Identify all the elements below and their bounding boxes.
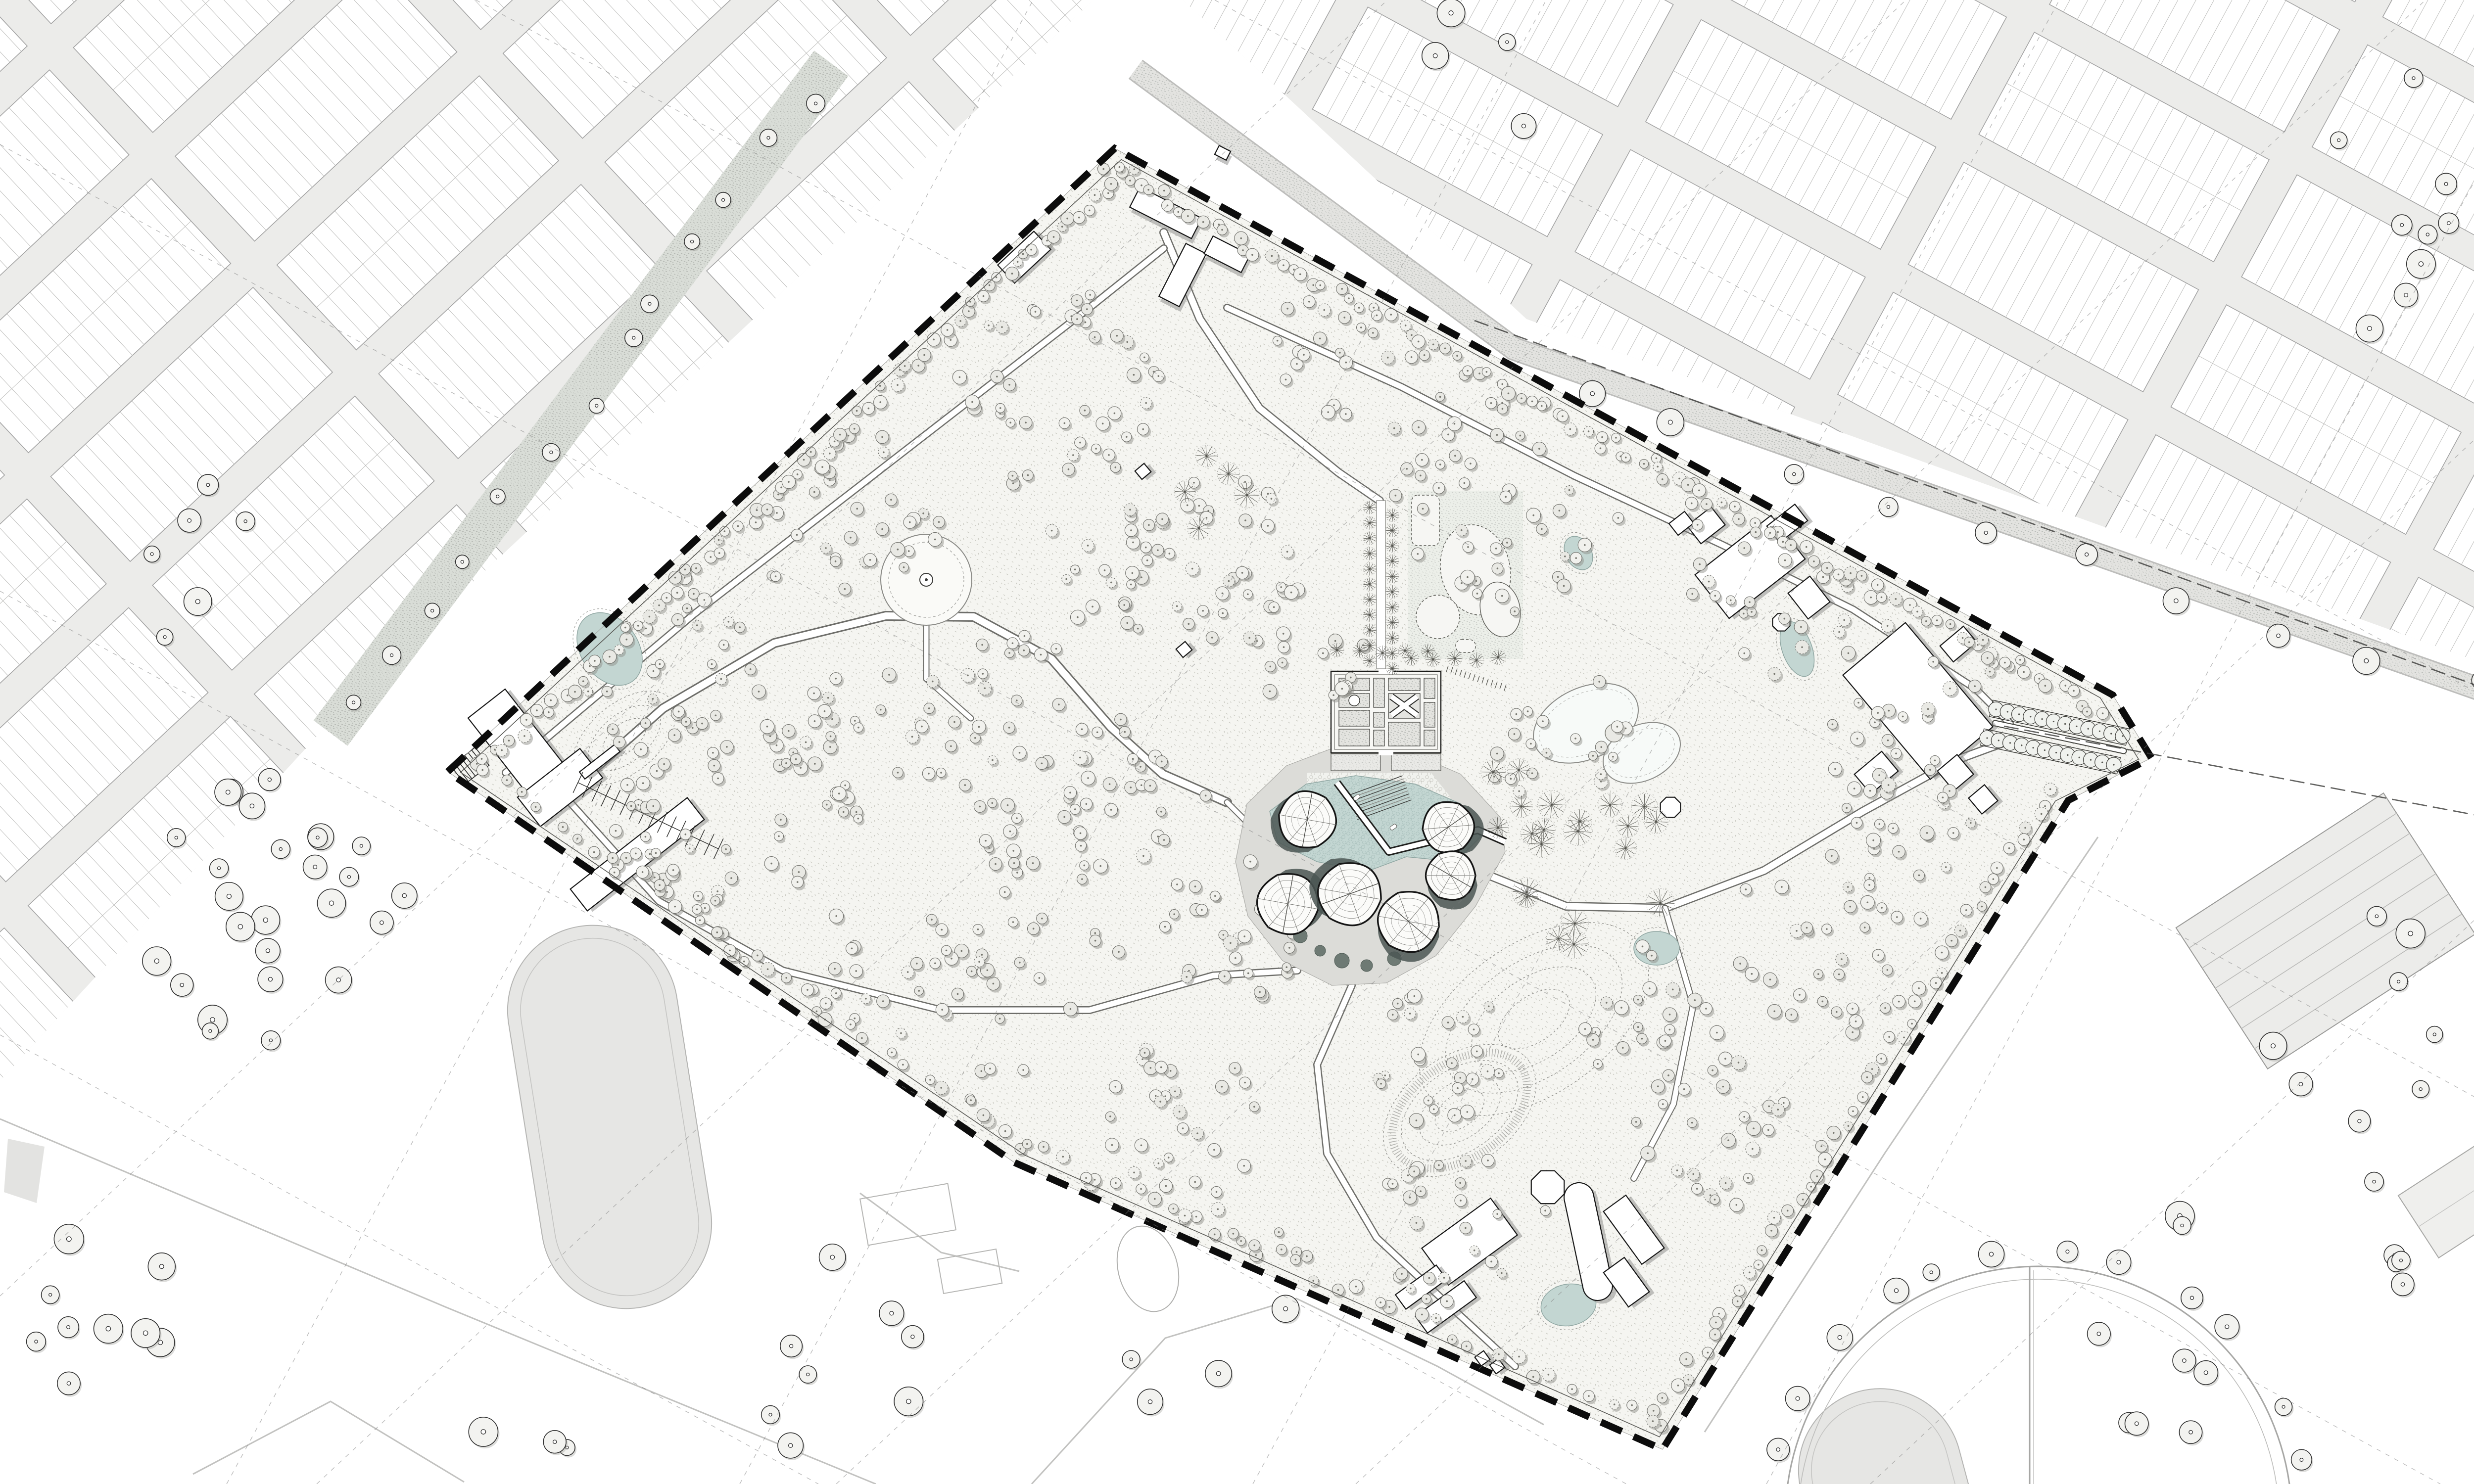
tree-center	[1542, 720, 1544, 722]
tree-center	[1076, 318, 1078, 320]
tree-center	[1846, 807, 1848, 809]
tree-center	[1080, 833, 1082, 835]
tree-center	[1751, 611, 1753, 613]
tree-center	[968, 310, 970, 312]
tree-center	[1657, 1085, 1659, 1087]
tree-center	[1283, 265, 1285, 267]
tree-center	[1981, 906, 1983, 908]
running-track	[1780, 1370, 2020, 1484]
tree-center	[1559, 510, 1561, 511]
tree-center	[1464, 482, 1466, 484]
tree-center	[1925, 620, 1927, 622]
tree-center	[971, 401, 973, 403]
tree-center	[1027, 474, 1029, 476]
tree-center	[1777, 531, 1779, 533]
tree-center	[1142, 855, 1144, 857]
tree-center	[1157, 835, 1159, 837]
tree-center	[983, 295, 985, 297]
context-road	[193, 1401, 464, 1482]
tree-center	[1130, 787, 1132, 788]
tree-center	[1159, 1101, 1161, 1103]
tree-center	[1087, 545, 1089, 547]
tree-center	[1178, 211, 1180, 213]
tree-center	[1790, 544, 1792, 546]
tree-center	[1074, 568, 1076, 570]
tree-center	[1826, 567, 1828, 569]
tree-center	[1243, 935, 1245, 937]
tree-center	[829, 453, 831, 455]
garden-bed-texture	[1388, 678, 1420, 691]
tree-center	[813, 693, 815, 695]
tree-center	[1011, 273, 1013, 275]
block-outline	[933, 0, 1214, 144]
parcel-line	[754, 1042, 833, 1127]
tree-center	[663, 763, 665, 765]
tree-center	[1761, 1250, 1763, 1252]
tree-center	[1606, 1002, 1608, 1004]
tree-center	[1716, 1032, 1718, 1034]
parcel-line	[414, 1156, 494, 1241]
parcel-line	[2126, 786, 2182, 888]
parcel-line	[2445, 790, 2474, 893]
tree-center	[1708, 581, 1710, 583]
tree-center	[1710, 1194, 1712, 1196]
tree-center	[1421, 459, 1423, 461]
tree-center	[494, 749, 496, 751]
tree-center	[1433, 1109, 1435, 1111]
tree-center	[1341, 288, 1343, 290]
tree-center	[1532, 514, 1534, 516]
tree-center	[1643, 463, 1645, 465]
tree-center	[637, 625, 639, 627]
tree-center	[879, 385, 881, 387]
garden-bed-texture	[1424, 678, 1435, 698]
tree-center	[1033, 928, 1035, 930]
tree-center	[2065, 685, 2067, 687]
parcel-line	[2252, 686, 2308, 788]
parcel-line	[742, 1053, 822, 1138]
tree-center	[1333, 404, 1335, 406]
tree-center	[1109, 783, 1111, 785]
tree-center	[1025, 421, 1027, 423]
tree-center	[981, 954, 983, 956]
tree-center	[855, 970, 857, 972]
tree-center	[1927, 708, 1929, 710]
tree-center	[1743, 547, 1745, 549]
tree-center	[1755, 531, 1757, 533]
tree-center	[1416, 1119, 1418, 1121]
parcel-line	[43, 1096, 122, 1181]
tree-center	[1161, 518, 1163, 520]
tree-center	[1651, 955, 1653, 957]
tree-center	[1727, 1139, 1729, 1141]
tree-center	[1932, 661, 1934, 663]
garden-bed-texture	[1388, 722, 1420, 746]
tree-center	[979, 806, 981, 808]
play-shape	[1412, 495, 1439, 546]
tree-center	[1035, 311, 1037, 313]
tree-center	[1132, 542, 1134, 544]
tree-center	[618, 649, 620, 651]
tree-center	[1409, 1013, 1411, 1015]
tree-center	[1968, 641, 1970, 643]
tree-center	[1086, 803, 1088, 805]
tree-center	[1718, 1313, 1720, 1315]
tree-center	[951, 958, 952, 960]
tree-center	[1656, 458, 1658, 460]
tree-center	[1892, 828, 1894, 830]
garden-terrace-texture	[1391, 754, 1441, 771]
tree-center	[1854, 788, 1855, 789]
tree-center	[718, 552, 720, 554]
tree-center	[1520, 435, 1522, 437]
tree-center	[720, 678, 722, 680]
tree-center	[645, 628, 647, 630]
tree-center	[723, 644, 725, 646]
tree-center	[2004, 662, 2006, 664]
tree-center	[695, 567, 697, 569]
tree-center	[1244, 1082, 1246, 1084]
tree-center	[1989, 671, 1991, 673]
tree-center	[851, 947, 853, 949]
parcel-line	[719, 1075, 799, 1160]
tree-center	[525, 719, 527, 721]
parcel-line	[188, 960, 267, 1045]
tree-center	[879, 401, 881, 403]
tree-center	[1133, 168, 1135, 170]
tree-center	[1186, 976, 1188, 978]
tree-center	[1952, 832, 1954, 834]
parcel-line	[0, 1194, 18, 1279]
tree-center	[1768, 1106, 1770, 1108]
tree-center	[1395, 495, 1397, 497]
tree-center	[1810, 1186, 1812, 1188]
tree-center	[1879, 823, 1881, 825]
tree-center	[856, 410, 858, 412]
tree-center	[1749, 1272, 1751, 1274]
tree-center	[1699, 563, 1701, 565]
parcel-line	[109, 1237, 189, 1322]
parcel-line	[1049, 32, 1104, 135]
parcel-line	[1133, 0, 1189, 12]
tree-center	[678, 711, 680, 713]
tree-center	[1467, 370, 1469, 372]
tree-center	[946, 950, 948, 952]
tree-center	[880, 709, 882, 711]
tree-center	[1350, 677, 1352, 679]
tree-center	[1030, 249, 1032, 251]
tree-center	[1092, 605, 1094, 607]
parcel-line	[1119, 0, 1175, 4]
parcel-line	[65, 1074, 145, 1159]
tree-center	[1600, 773, 1602, 775]
tree-center	[776, 744, 778, 746]
tree-center	[1584, 1028, 1586, 1030]
tree-center	[1697, 524, 1699, 526]
tree-center	[1249, 861, 1251, 863]
tree-center	[1133, 374, 1135, 376]
tree-center	[1895, 598, 1897, 600]
tree-center	[1557, 576, 1559, 578]
tree-center	[728, 621, 730, 623]
tree-center	[589, 665, 591, 667]
tree-center	[1221, 229, 1223, 231]
tree-center	[826, 804, 828, 806]
tree-center	[1730, 600, 1732, 602]
tree-center	[869, 559, 871, 561]
block-outline	[5, 1145, 287, 1419]
tree-center	[1438, 487, 1440, 489]
tree-center	[928, 773, 930, 775]
tree-center	[1126, 341, 1128, 343]
tree-center	[1247, 593, 1249, 595]
tree-center	[652, 805, 654, 807]
tree-center	[788, 481, 790, 483]
tree-center	[1872, 839, 1874, 841]
tree-center	[1406, 468, 1408, 470]
tree-center	[1813, 560, 1815, 562]
tree-center	[1888, 784, 1890, 786]
tree-center	[1769, 978, 1771, 980]
tree-center	[1887, 969, 1889, 971]
tree-center	[1487, 1070, 1489, 1072]
tree-center	[995, 863, 997, 865]
tree-center	[805, 742, 807, 743]
tree-center	[567, 695, 569, 696]
tree-center	[693, 593, 695, 595]
tree-center	[1089, 210, 1091, 212]
tree-center	[1618, 517, 1619, 519]
tree-center	[1322, 652, 1324, 654]
tree-center	[1259, 991, 1261, 993]
tree-center	[1348, 297, 1350, 299]
tree-center	[658, 604, 660, 606]
tree-center	[835, 992, 837, 994]
parcel-line	[2098, 770, 2154, 873]
tree-center	[1084, 865, 1086, 867]
tree-center	[881, 528, 883, 530]
tree-center	[854, 1018, 856, 1020]
tree-center	[1692, 1173, 1694, 1175]
tree-center	[1051, 530, 1053, 532]
tree-center	[1834, 768, 1836, 770]
tree-center	[1401, 1273, 1403, 1275]
tree-center	[1838, 574, 1840, 576]
tree-center	[1053, 236, 1055, 238]
tree-center	[992, 759, 994, 761]
tree-center	[1224, 975, 1226, 977]
tree-center	[1478, 372, 1480, 374]
tree-center	[1715, 1322, 1717, 1324]
track-outer	[1780, 1370, 2020, 1484]
parcel-line	[202, 1151, 282, 1236]
tree-center	[1751, 973, 1753, 975]
tree-center	[776, 512, 778, 514]
tree-center	[999, 407, 1001, 409]
tree-center	[984, 687, 986, 689]
tree-center	[1114, 413, 1116, 415]
garden-bed-texture	[1374, 712, 1384, 727]
tree-center	[1157, 549, 1159, 551]
tree-center	[2082, 705, 2084, 707]
tree-center	[649, 853, 651, 855]
tree-center	[1055, 648, 1057, 650]
tree-center	[1084, 410, 1086, 412]
tree-center	[922, 512, 924, 514]
tree-center	[921, 726, 923, 728]
parcel-line	[1077, 47, 1132, 150]
tree-center	[1393, 427, 1395, 429]
tree-center	[726, 746, 728, 748]
tree-center	[1019, 962, 1021, 964]
tree-center	[1877, 584, 1879, 586]
tree-center	[1831, 855, 1833, 857]
tree-center	[1447, 1021, 1449, 1023]
tree-center	[1929, 769, 1931, 771]
site-plan	[0, 0, 2474, 1484]
tree-center	[1116, 335, 1118, 337]
tree-center	[1902, 716, 1904, 718]
tree-center	[1754, 522, 1756, 524]
play-area	[1416, 595, 1460, 639]
tree-center	[1490, 402, 1492, 404]
tree-center	[1541, 528, 1543, 530]
tree-center	[1454, 423, 1456, 425]
tree-center	[981, 644, 983, 646]
tree-center	[1737, 1300, 1739, 1302]
tree-center	[1079, 442, 1081, 444]
tree-center	[1508, 393, 1510, 395]
tree-center	[1662, 1103, 1664, 1105]
tree-center	[696, 624, 698, 626]
tree-center	[1753, 1127, 1755, 1129]
tree-center	[1531, 401, 1533, 403]
tree-center	[897, 384, 899, 386]
parcel-line	[481, 1297, 561, 1382]
tree-center	[1413, 1170, 1415, 1172]
tree-center	[1493, 776, 1495, 778]
tree-center	[810, 451, 812, 453]
tree-center	[1165, 1185, 1167, 1187]
tree-center	[1841, 958, 1843, 960]
tree-center	[625, 639, 627, 641]
tree-center	[1193, 482, 1195, 484]
tree-center	[1424, 354, 1426, 356]
tree-center	[1949, 688, 1951, 690]
tree-center	[582, 680, 584, 682]
tree-center	[888, 674, 890, 676]
parcel-line	[0, 1205, 6, 1290]
tree-center	[1977, 644, 1979, 646]
tree-center	[1714, 1199, 1716, 1201]
tree-center	[1514, 610, 1516, 612]
tree-center	[1372, 332, 1374, 334]
parcel-line	[437, 1134, 517, 1219]
tree-center	[1884, 1007, 1886, 1009]
tree-center	[1255, 1254, 1257, 1256]
tree-center	[2073, 690, 2075, 692]
tree-center	[659, 663, 661, 665]
tree-center	[1064, 422, 1066, 424]
tree-center	[1696, 1188, 1698, 1190]
tree-center	[1563, 585, 1565, 587]
tree-center	[1303, 354, 1305, 356]
tree-center	[1787, 1210, 1789, 1212]
tree-center	[2044, 805, 2046, 807]
play-area	[1456, 640, 1475, 652]
tree-center	[1749, 601, 1751, 603]
tree-center	[857, 818, 859, 820]
pale-building	[2398, 1136, 2474, 1258]
tree-center	[635, 853, 637, 855]
tree-center	[1417, 553, 1419, 555]
tree-center	[1149, 1067, 1151, 1069]
tree-center	[1496, 1213, 1498, 1215]
tree-center	[1694, 999, 1696, 1001]
parcel-line	[2155, 633, 2210, 735]
tree-center	[1784, 618, 1786, 620]
tree-center	[1041, 918, 1043, 920]
tree-center	[1920, 918, 1922, 920]
tree-center	[1465, 1160, 1467, 1162]
tree-center	[1993, 878, 1995, 880]
tree-center	[1296, 363, 1298, 365]
tree-center	[1887, 625, 1889, 627]
parcel-line	[708, 1086, 787, 1171]
parcel-line	[359, 1004, 438, 1089]
tree-center	[1531, 772, 1533, 774]
tree-center	[830, 736, 832, 738]
tree-center	[1417, 1054, 1419, 1056]
tree-center	[1194, 1181, 1196, 1183]
tree-center	[1248, 637, 1250, 639]
tree-center	[1198, 505, 1200, 507]
tree-center	[1420, 475, 1422, 477]
tree-center	[1941, 972, 1943, 974]
tree-center	[1069, 792, 1071, 794]
tree-center	[653, 670, 655, 672]
tree-center	[1799, 994, 1801, 996]
garden-bed-texture	[1374, 730, 1384, 746]
parcel-line	[100, 1042, 180, 1127]
tree-center	[1115, 1086, 1117, 1088]
tree-center	[1358, 307, 1360, 309]
tree-center	[1341, 688, 1343, 690]
tree-center	[1008, 727, 1010, 729]
tree-center	[2023, 838, 2025, 840]
tree-center	[1495, 548, 1497, 550]
tree-center	[883, 452, 885, 454]
tree-center	[1016, 699, 1018, 701]
tree-center	[834, 968, 836, 970]
tree-center	[1725, 1182, 1727, 1184]
tree-center	[1414, 995, 1416, 997]
tree-center	[642, 782, 644, 784]
garden-gate	[1379, 750, 1393, 755]
tree-center	[1454, 455, 1456, 457]
context-plot	[860, 1184, 956, 1246]
tree-center	[1822, 1001, 1824, 1003]
parcel-line	[391, 1178, 471, 1263]
tree-center	[1334, 640, 1336, 642]
tree-center	[1881, 907, 1883, 909]
tree-center	[947, 329, 949, 331]
tree-center	[1278, 1231, 1280, 1233]
tree-center	[1617, 726, 1618, 728]
tree-center	[1041, 762, 1043, 764]
tree-center	[673, 734, 675, 736]
tree-center	[1903, 1036, 1905, 1038]
